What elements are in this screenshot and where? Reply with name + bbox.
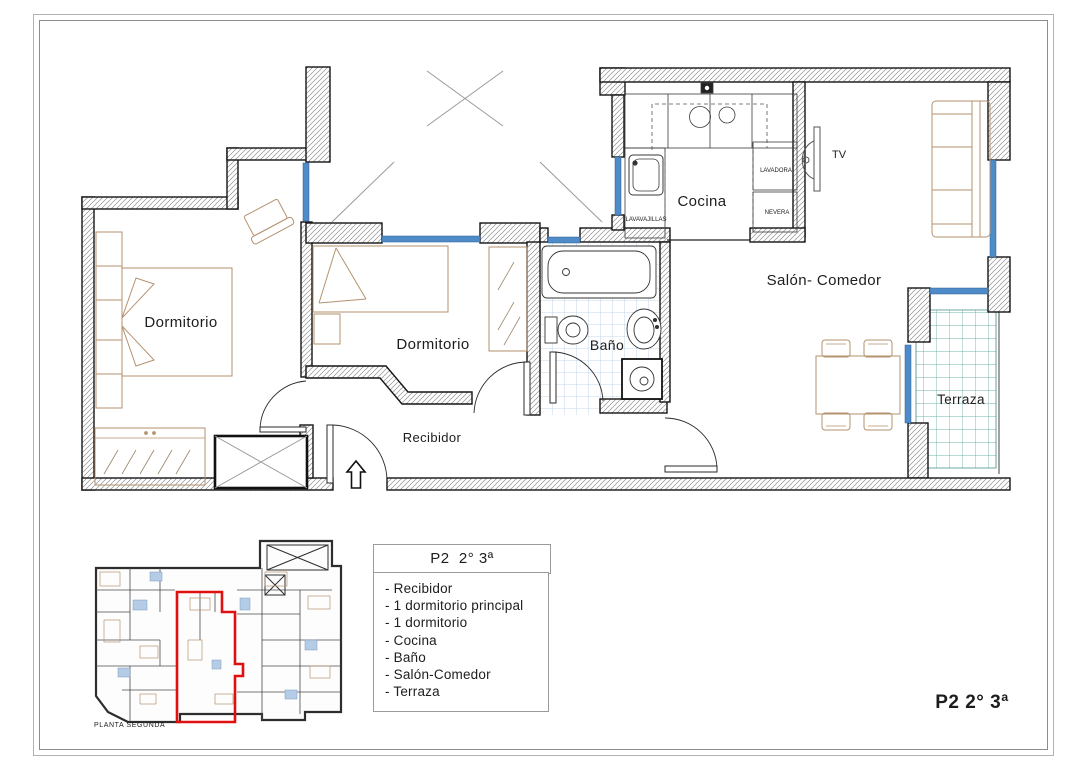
window-terrace-north [930, 288, 988, 294]
door-leaf-entrance [327, 425, 333, 483]
window-nook [303, 163, 309, 221]
chair [822, 340, 850, 357]
door-arc-living [665, 418, 717, 468]
label-dishwasher: LAVAVAJILLAS [626, 217, 667, 223]
patio-lightwell [332, 71, 602, 222]
legend-item: - Salón-Comedor [385, 666, 548, 683]
door-leaf-bedroom2 [524, 362, 530, 415]
sofa [932, 101, 990, 237]
door-leaf-living [665, 466, 717, 472]
chair [864, 340, 892, 357]
dining-table [816, 356, 900, 414]
label-terrace: Terraza [937, 392, 985, 407]
plan-sheet: Dormitorio Dormitorio Baño Cocina Salón-… [0, 0, 1086, 768]
legend-item: - 1 dormitorio principal [385, 597, 548, 614]
window-living-east [990, 160, 996, 257]
furniture-bedroom1 [95, 232, 232, 485]
tv-panel [814, 127, 820, 191]
chair [864, 413, 892, 430]
door-leaf-bedroom1 [260, 427, 306, 432]
legend-item: - 1 dormitorio [385, 614, 548, 631]
window-bedroom2 [382, 236, 480, 242]
label-fridge: NEVERA [765, 210, 790, 216]
sheet-code: P2 2° 3ª [920, 692, 1024, 714]
legend-item: - Baño [385, 649, 548, 666]
legend-item: - Cocina [385, 632, 548, 649]
label-bedroom2: Dormitorio [396, 336, 469, 353]
window-bathroom [548, 237, 580, 243]
legend-title: P2 2° 3ª [373, 544, 551, 574]
door-arc-bedroom1 [260, 381, 306, 429]
cooktop-burner [690, 107, 711, 128]
legend-item: - Terraza [385, 683, 548, 700]
label-bathroom: Baño [590, 337, 624, 353]
label-living: Salón- Comedor [767, 272, 882, 289]
label-washer: LAVADORA [760, 168, 792, 174]
minimap-caption: PLANTA SEGUNDA [94, 722, 165, 729]
armchair [240, 197, 295, 245]
legend: - Recibidor - 1 dormitorio principal - 1… [373, 572, 549, 712]
minimap-building-plan [96, 541, 341, 722]
toilet-tank [545, 317, 557, 343]
legend-item: - Recibidor [385, 580, 548, 597]
window-kitchen [615, 157, 621, 215]
cooktop-burner [719, 107, 735, 123]
label-bedroom1: Dormitorio [144, 314, 217, 331]
door-arc-bedroom2 [474, 362, 527, 413]
door-leaf-bathroom [550, 352, 556, 403]
entrance-arrow-icon [347, 461, 365, 488]
washing-machine [753, 142, 797, 190]
glass-door-terrace [905, 345, 911, 423]
elevator-shaft [215, 436, 307, 488]
label-tv: TV [832, 149, 847, 161]
chair [822, 413, 850, 430]
label-hall: Recibidor [403, 430, 462, 445]
label-kitchen: Cocina [677, 193, 726, 210]
